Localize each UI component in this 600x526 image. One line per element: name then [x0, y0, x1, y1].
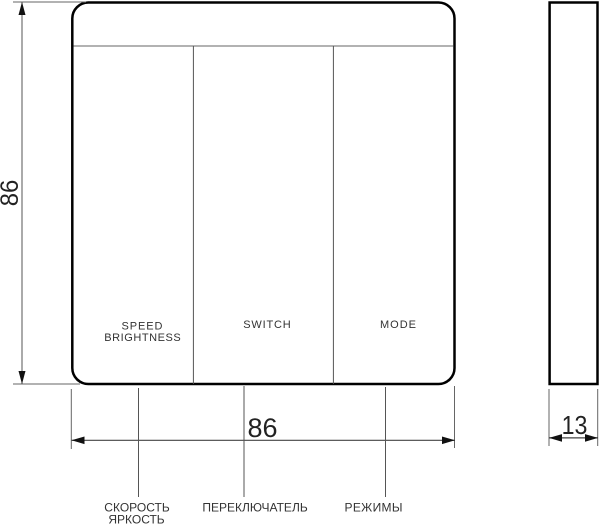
svg-text:ПЕРЕКЛЮЧАТЕЛЬ: ПЕРЕКЛЮЧАТЕЛЬ	[202, 500, 308, 514]
svg-text:BRIGHTNESS: BRIGHTNESS	[104, 332, 181, 344]
svg-text:86: 86	[0, 180, 24, 207]
svg-text:РЕЖИМЫ: РЕЖИМЫ	[345, 501, 403, 515]
svg-text:13: 13	[562, 412, 588, 440]
svg-text:ЯРКОСТЬ: ЯРКОСТЬ	[108, 512, 164, 526]
svg-text:SWITCH: SWITCH	[243, 319, 291, 331]
svg-text:86: 86	[247, 413, 277, 443]
svg-text:MODE: MODE	[380, 319, 416, 331]
svg-text:SPEED: SPEED	[122, 320, 163, 332]
